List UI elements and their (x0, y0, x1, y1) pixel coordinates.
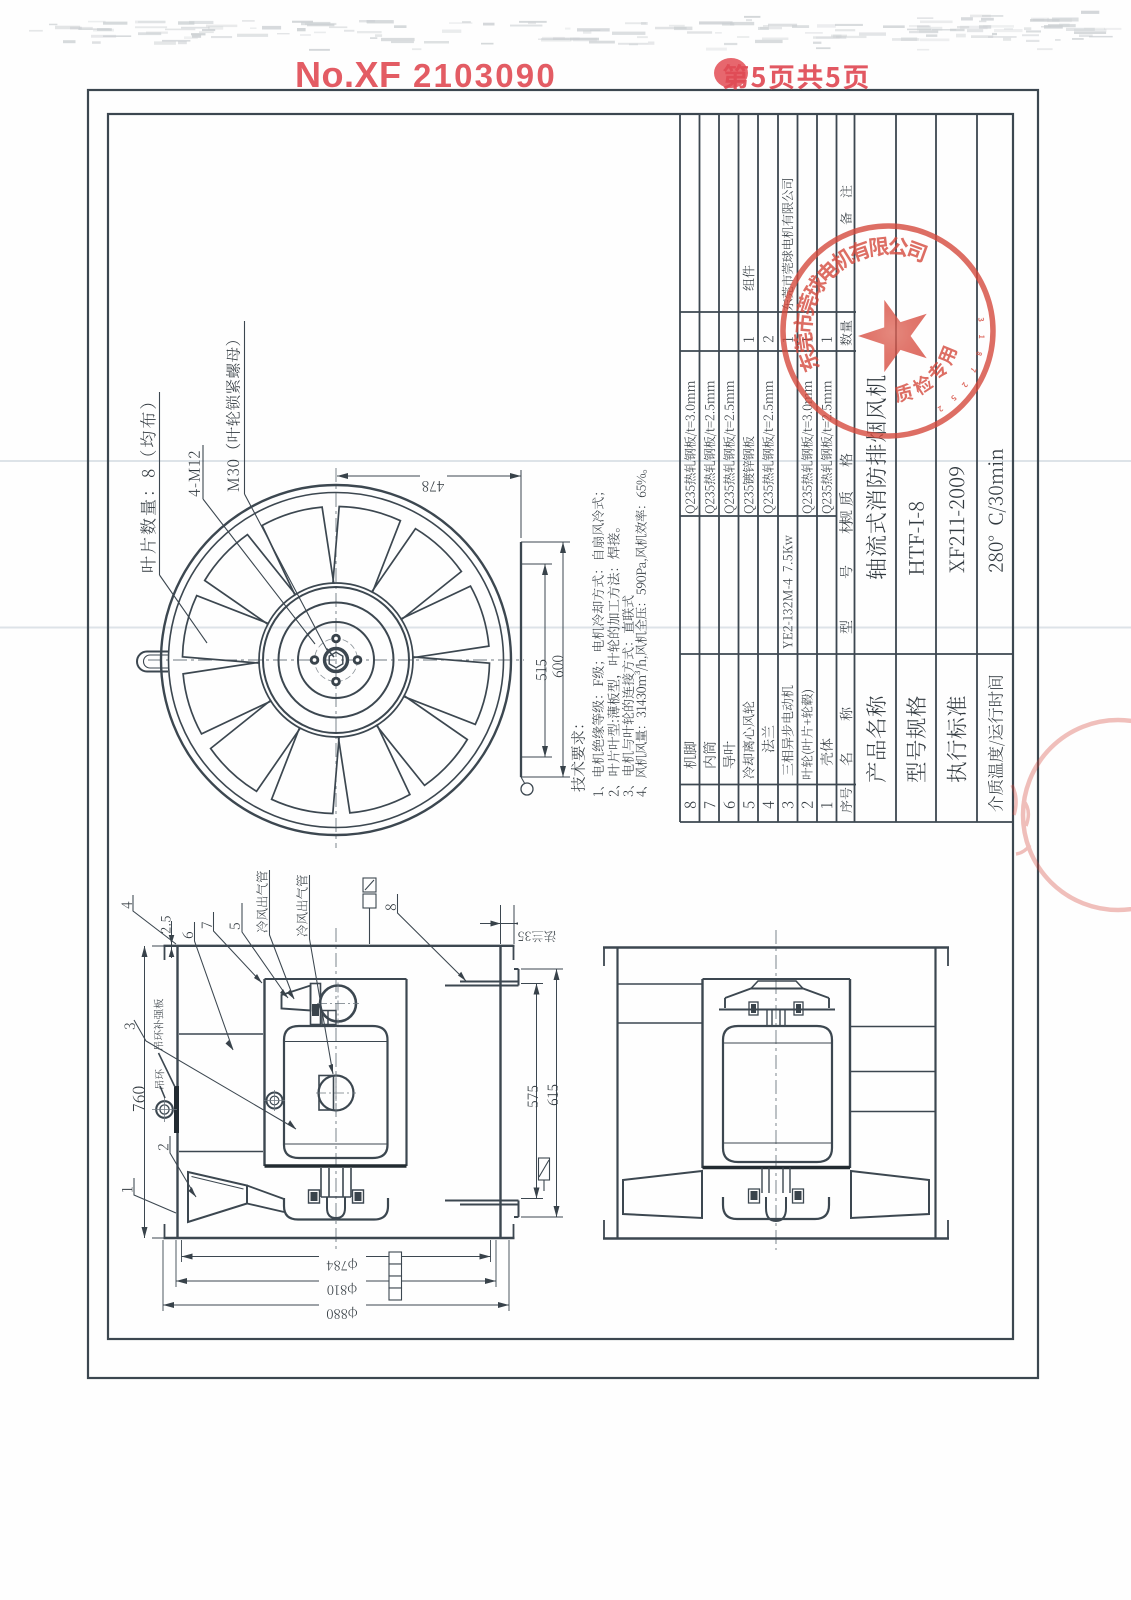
svg-text:No.XF: No.XF (295, 54, 402, 95)
svg-text:2103090: 2103090 (413, 57, 557, 94)
